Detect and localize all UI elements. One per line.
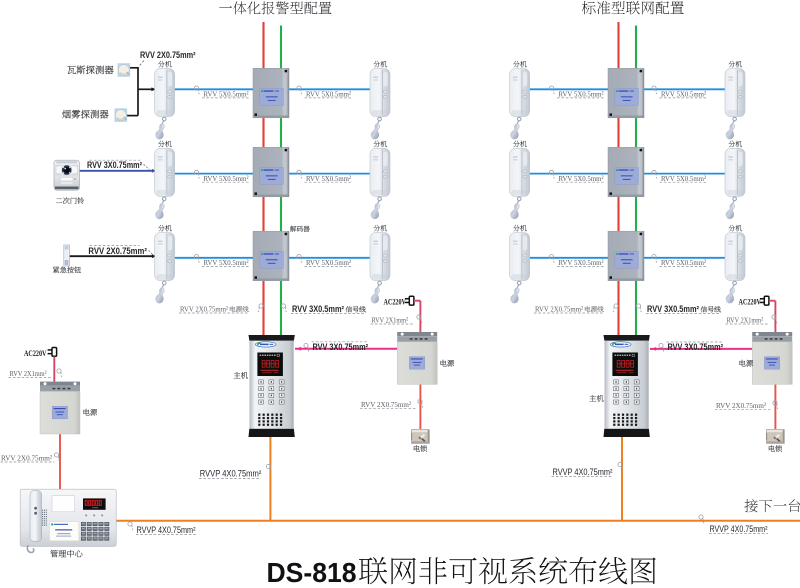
svg-text:RVV 3X0.5mm²: RVV 3X0.5mm²	[292, 304, 344, 314]
svg-text:AC220V: AC220V	[739, 298, 762, 307]
svg-text:RVV 3X0.75mm²: RVV 3X0.75mm²	[87, 160, 142, 170]
svg-text:RVV 2X0.75mm²: RVV 2X0.75mm²	[1, 454, 53, 463]
svg-text:RVVP 4X0.75mm²: RVVP 4X0.75mm²	[553, 467, 613, 477]
svg-text:RVV 3X0.5mm²: RVV 3X0.5mm²	[647, 304, 699, 314]
svg-text:RVV 2X1mm²: RVV 2X1mm²	[10, 369, 48, 378]
svg-text:RVV 2X0.75mm²: RVV 2X0.75mm²	[180, 305, 229, 314]
svg-text:RVV 5X0.5mm²: RVV 5X0.5mm²	[306, 258, 352, 267]
svg-text:RVV 5X0.5mm²: RVV 5X0.5mm²	[306, 90, 352, 99]
svg-text:RVV 3X0.75mm²: RVV 3X0.75mm²	[313, 342, 369, 352]
svg-text:RVV 5X0.5mm²: RVV 5X0.5mm²	[661, 90, 707, 99]
svg-text:RVV 5X0.5mm²: RVV 5X0.5mm²	[204, 90, 250, 99]
svg-text:AC220V: AC220V	[24, 349, 47, 358]
svg-text:RVV 2X1mm²: RVV 2X1mm²	[727, 316, 764, 325]
svg-text:RVV 5X0.5mm²: RVV 5X0.5mm²	[559, 90, 605, 99]
svg-text:RVV 5X0.5mm²: RVV 5X0.5mm²	[204, 258, 250, 267]
svg-text:RVV 2X0.75mm²: RVV 2X0.75mm²	[535, 305, 584, 314]
svg-text:AC220V: AC220V	[384, 298, 407, 307]
svg-text:RVVP 4X0.75mm²: RVVP 4X0.75mm²	[137, 525, 196, 535]
svg-text:RVVP 4X0.75mm²: RVVP 4X0.75mm²	[710, 524, 768, 534]
svg-text:RVV 2X0.75mm²: RVV 2X0.75mm²	[361, 400, 412, 409]
svg-text:RVV 5X0.5mm²: RVV 5X0.5mm²	[559, 258, 605, 267]
svg-text:RVV 3X0.75mm²: RVV 3X0.75mm²	[668, 342, 724, 352]
svg-text:RVV 5X0.5mm²: RVV 5X0.5mm²	[306, 174, 352, 183]
svg-text:RVV 5X0.5mm²: RVV 5X0.5mm²	[661, 174, 707, 183]
svg-text:DS-818: DS-818	[267, 557, 357, 588]
svg-text:RVV 5X0.5mm²: RVV 5X0.5mm²	[204, 174, 250, 183]
svg-text:RVV 2X0.75mm²: RVV 2X0.75mm²	[716, 401, 767, 410]
svg-text:RVV 5X0.5mm²: RVV 5X0.5mm²	[559, 174, 605, 183]
svg-text:RVV 5X0.5mm²: RVV 5X0.5mm²	[661, 258, 707, 267]
svg-text:RVVP 4X0.75mm²: RVVP 4X0.75mm²	[200, 469, 261, 479]
svg-text:RVV 2X0.75mm²: RVV 2X0.75mm²	[88, 246, 147, 256]
svg-text:RVV 2X1mm²: RVV 2X1mm²	[372, 316, 409, 325]
svg-text:RVV 2X0.75mm²: RVV 2X0.75mm²	[140, 50, 196, 60]
